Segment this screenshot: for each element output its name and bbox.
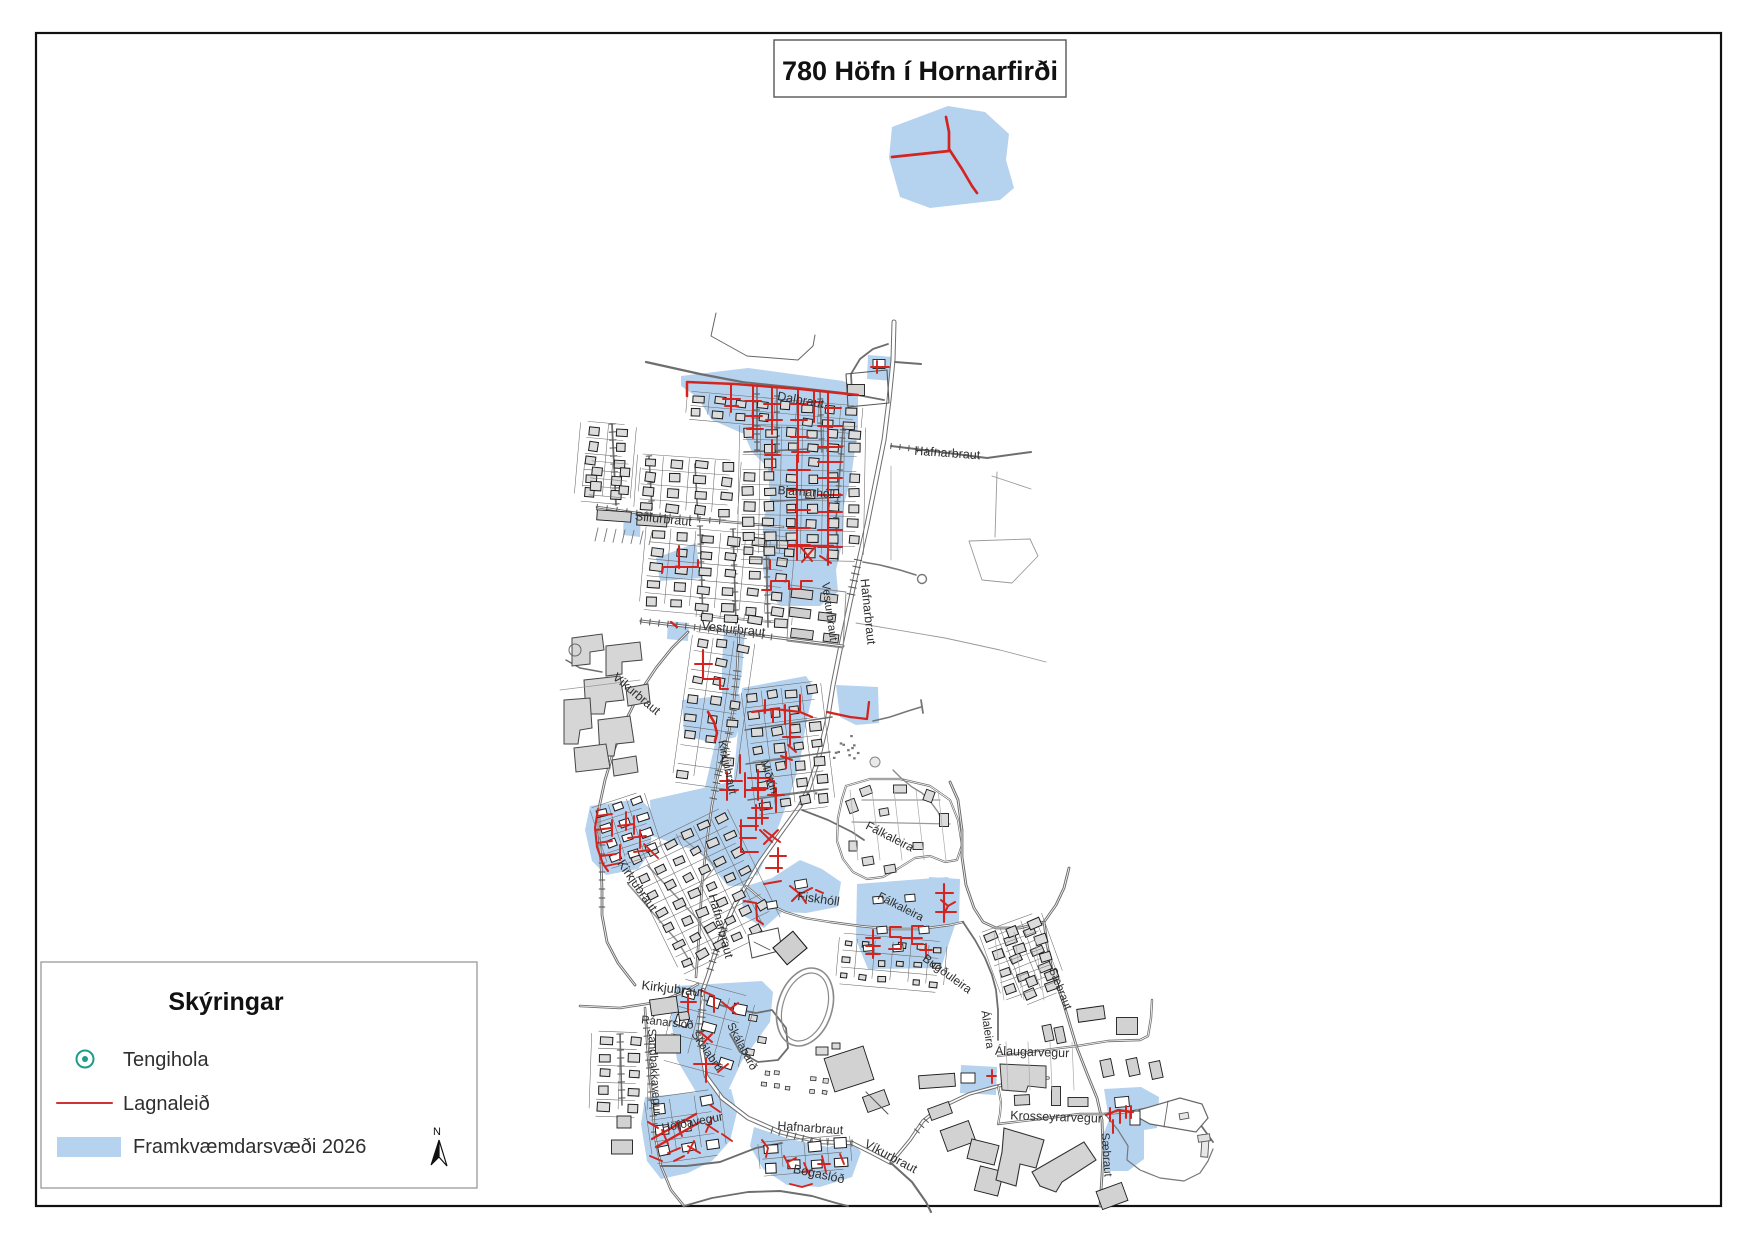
svg-text:Álaugarvegur: Álaugarvegur [995, 1043, 1070, 1061]
svg-text:N: N [433, 1126, 441, 1138]
svg-text:Framkvæmdarsvæði 2026: Framkvæmdarsvæði 2026 [133, 1136, 366, 1158]
svg-text:Skýringar: Skýringar [168, 988, 284, 1016]
svg-text:Lagnaleið: Lagnaleið [123, 1093, 210, 1115]
svg-text:Tengihola: Tengihola [123, 1049, 210, 1071]
svg-text:780 Höfn í Hornarfirði: 780 Höfn í Hornarfirði [782, 56, 1058, 86]
